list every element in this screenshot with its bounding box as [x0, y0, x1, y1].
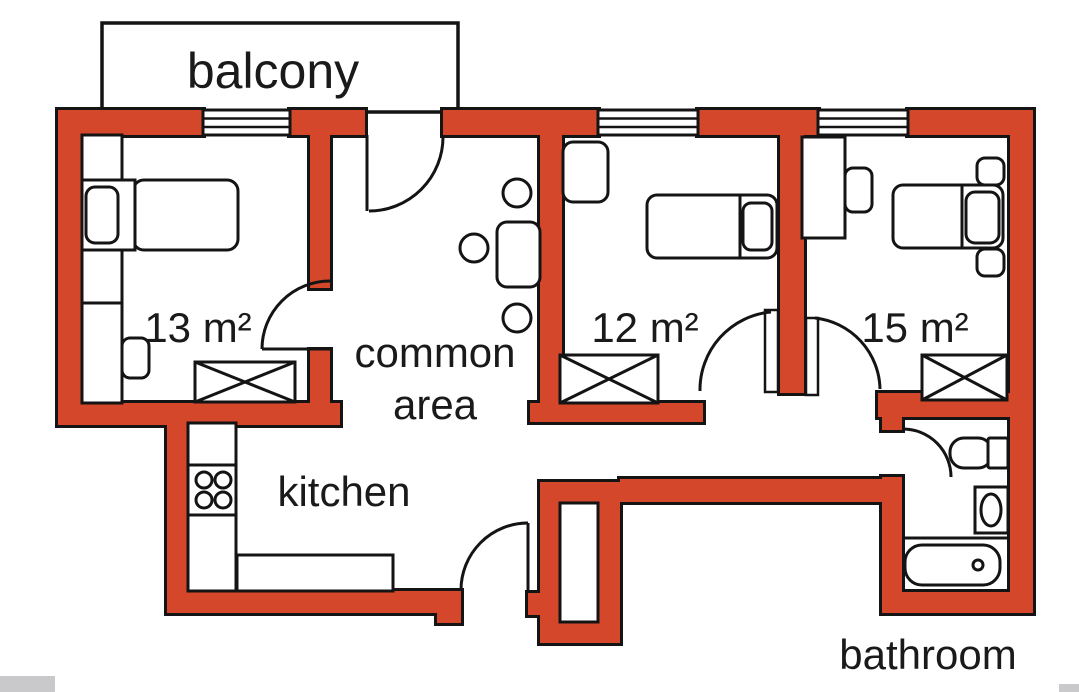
- toilet-icon: [950, 438, 1008, 468]
- table-icon: [497, 222, 540, 287]
- wall-top-d: [698, 110, 818, 135]
- pillow-icon: [966, 192, 999, 243]
- wall-kitchen-left: [167, 425, 188, 613]
- common-area-label-line1: common: [354, 329, 515, 376]
- cushion-icon: [977, 249, 1004, 276]
- wall-entrance-bump: [528, 593, 540, 615]
- window-icon: [818, 110, 908, 135]
- bathroom-label: bathroom: [839, 631, 1016, 678]
- wall-room12-bottom: [530, 403, 703, 422]
- cabinet-icon: [563, 142, 608, 202]
- page-strip-right: [1059, 684, 1079, 692]
- cabinet-icon: [82, 135, 122, 180]
- page-strip-left: [0, 676, 55, 692]
- stove-icon: [188, 465, 236, 515]
- chair-icon: [503, 179, 531, 207]
- floor-plan: balcony: [0, 0, 1079, 692]
- bed-icon: [133, 180, 238, 250]
- chair-icon: [503, 304, 531, 332]
- wardrobe-icon: [922, 355, 1007, 400]
- wall-bathroom-left-stub: [882, 417, 902, 430]
- balcony: balcony: [102, 23, 458, 112]
- pillow-icon: [743, 203, 772, 250]
- wardrobe-icon: [560, 355, 658, 403]
- room12-label: 12 m²: [591, 304, 698, 351]
- bed-icon: [647, 195, 777, 258]
- balcony-label: balcony: [187, 43, 359, 99]
- desk-icon: [82, 303, 122, 403]
- floor-plan-canvas: balcony: [0, 0, 1079, 692]
- entrance-recess: [560, 503, 598, 622]
- window-icon: [203, 110, 290, 135]
- wardrobe-icon: [195, 362, 295, 402]
- chair-icon: [460, 234, 488, 262]
- sink-icon: [975, 487, 1008, 533]
- wall-top-b: [290, 110, 365, 135]
- kitchen-label: kitchen: [277, 468, 410, 515]
- desk-icon: [802, 137, 845, 238]
- room13-label: 13 m²: [144, 304, 251, 351]
- wall-room13-right-upper: [310, 135, 330, 288]
- wall-room-divider: [780, 135, 804, 393]
- wall-top-c: [443, 110, 598, 135]
- window-icon: [598, 110, 698, 135]
- wall-left: [58, 110, 82, 425]
- chair-icon: [845, 168, 872, 212]
- bathtub-icon: [905, 545, 1000, 585]
- room15-label: 15 m²: [861, 304, 968, 351]
- cushion-icon: [977, 158, 1004, 185]
- pillow-icon: [86, 187, 118, 243]
- kitchen-counter-icon: [237, 555, 393, 591]
- wall-kitchen-door-jamb: [437, 591, 461, 623]
- wall-kitchen-bottom: [167, 591, 437, 613]
- wall-right: [1010, 110, 1033, 613]
- cabinet-icon: [82, 250, 122, 303]
- wall-hallway-bottom: [620, 479, 882, 502]
- common-area-label-line2: area: [393, 381, 478, 428]
